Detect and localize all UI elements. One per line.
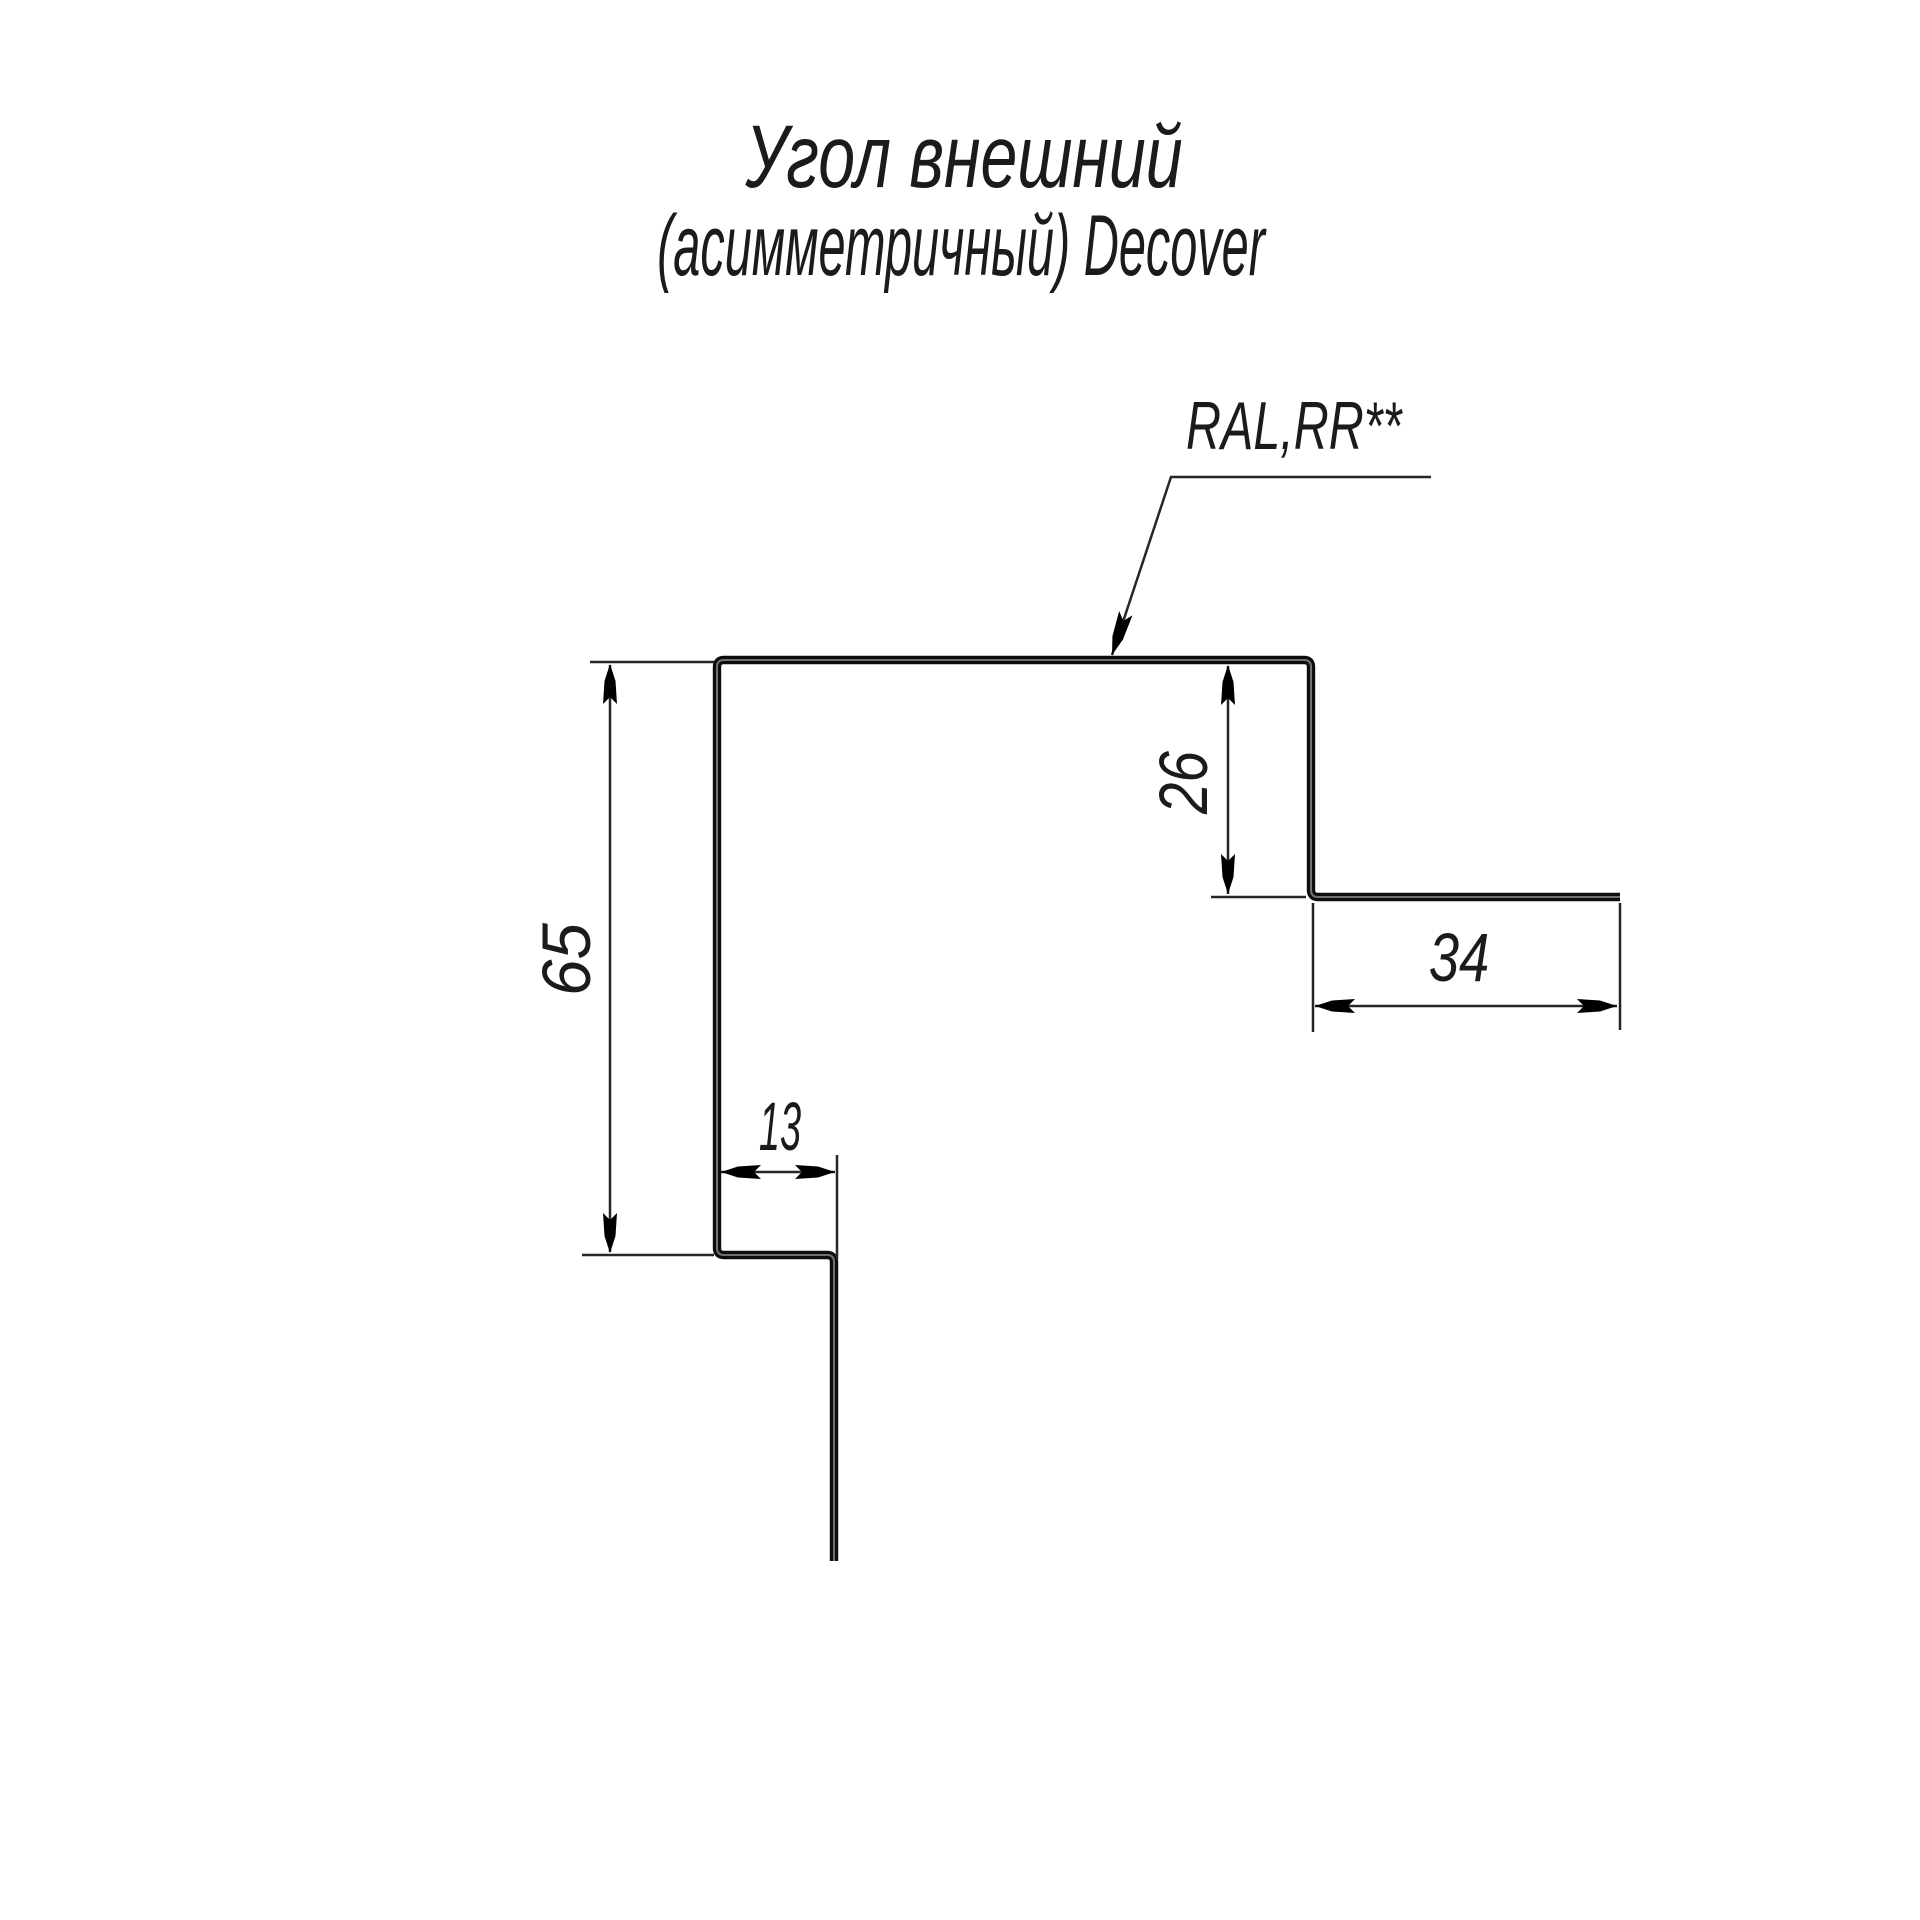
svg-text:13: 13 xyxy=(759,1088,801,1165)
svg-text:RAL,RR**: RAL,RR** xyxy=(1186,388,1403,464)
svg-text:Угол внешний: Угол внешний xyxy=(744,106,1182,206)
svg-text:26: 26 xyxy=(1146,750,1223,815)
svg-text:65: 65 xyxy=(528,923,605,996)
svg-text:(асимметричный) Decover: (асимметричный) Decover xyxy=(657,197,1267,293)
svg-text:34: 34 xyxy=(1429,920,1490,997)
